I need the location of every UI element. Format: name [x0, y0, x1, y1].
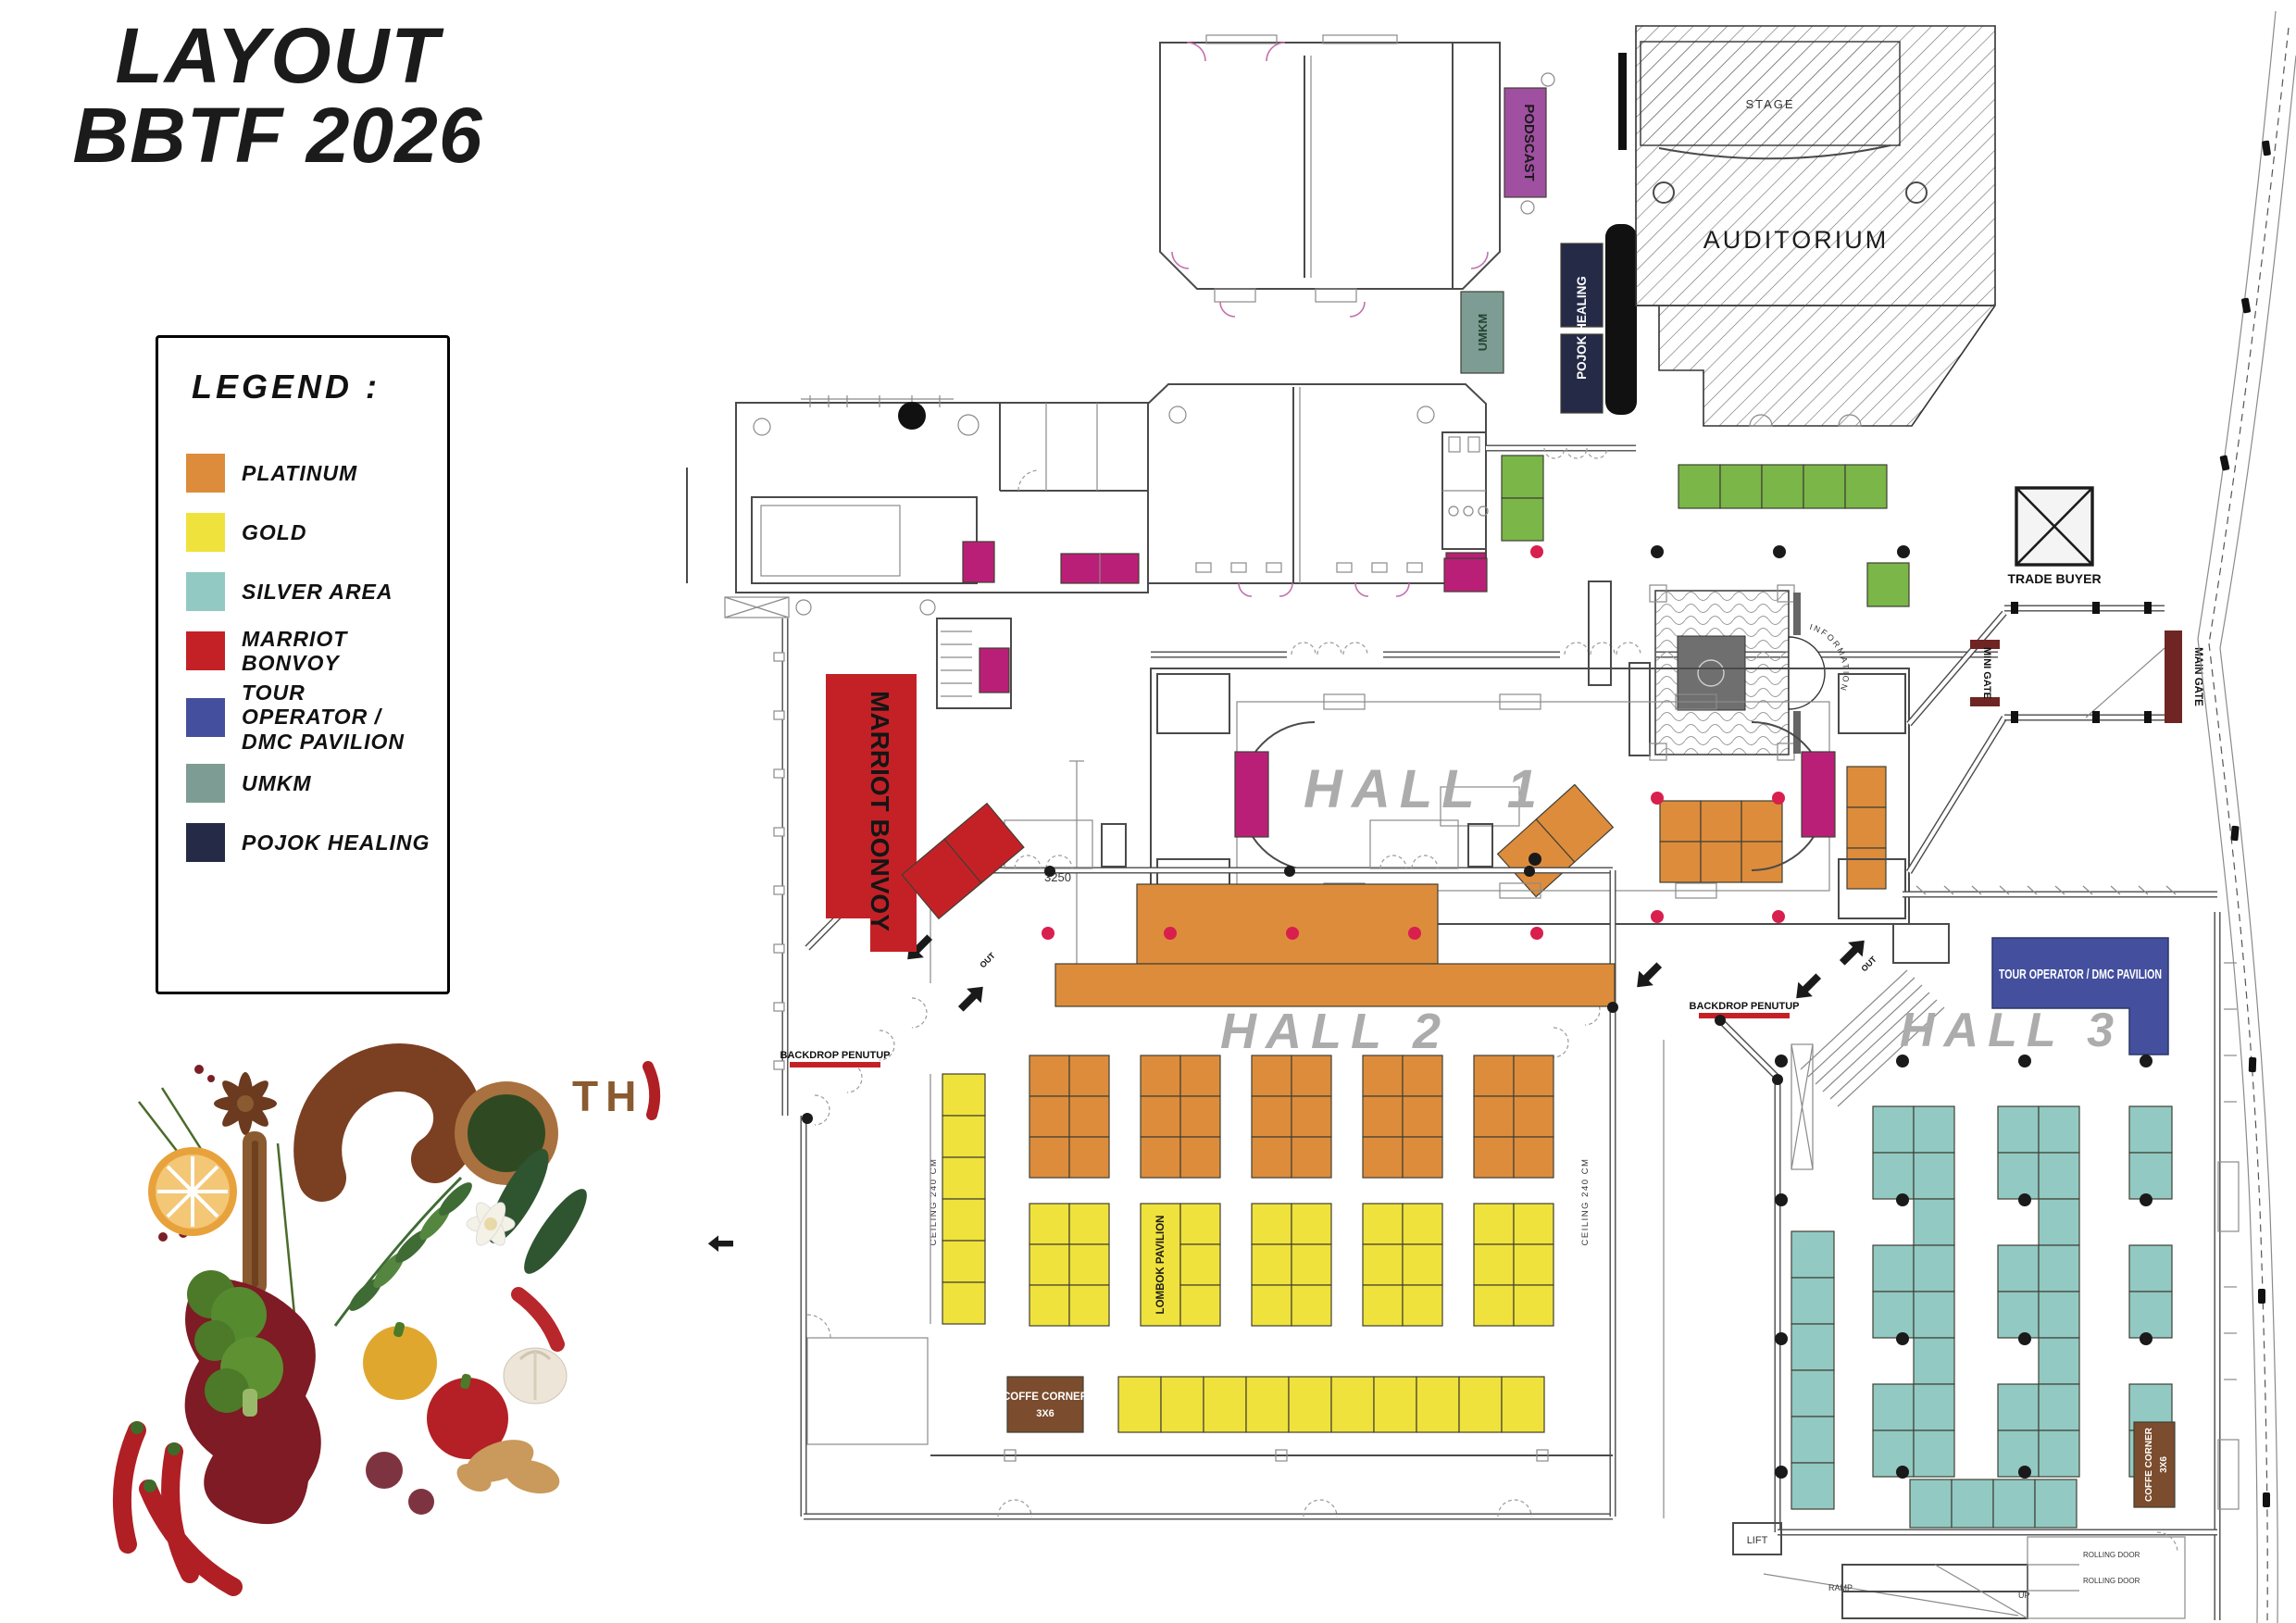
legend-swatch: [186, 764, 225, 803]
booth-magenta: [1802, 752, 1835, 837]
information-plaza: INFORMATION: [1650, 585, 1851, 760]
hall2-label: HALL 2: [1220, 1004, 1450, 1059]
star-anise-icon: [214, 1072, 277, 1135]
left-arrow-icon: [708, 1235, 733, 1252]
legend-label: PLATINUM: [242, 461, 357, 485]
legend-item: UMKM: [186, 754, 447, 813]
silver-island: [1998, 1106, 2079, 1477]
coffee-corner-hall3: COFFE CORNER 3X6: [2134, 1422, 2175, 1507]
legend-swatch: [186, 513, 225, 552]
chili-icon: [518, 1294, 557, 1344]
wall-black: [1618, 53, 1627, 150]
concourse: INFORMATION: [1151, 456, 1998, 897]
pojok-healing-label: POJOK HEALING: [1575, 276, 1589, 380]
main-gate-label: MAIN GATE: [2192, 647, 2203, 706]
backdrop-penutup-label: BACKDROP PENUTUP: [780, 1050, 891, 1061]
coffee-corner-line1: COFFE CORNER: [2144, 1427, 2154, 1502]
hall3-label: HALL 3: [1900, 1004, 2123, 1057]
main-gate: [2165, 630, 2182, 723]
lombok-pavilion-label: LOMBOK PAVILION: [1155, 1216, 1167, 1315]
car-icon: [2262, 141, 2271, 156]
green-booths: [1502, 456, 1909, 606]
car-icon: [2263, 1492, 2270, 1507]
stage-label: STAGE: [1745, 97, 1794, 111]
exit-arrow-icon: [954, 980, 991, 1017]
platinum-island: [1141, 1055, 1220, 1178]
legend-items: PLATINUMGOLDSILVER AREAMARRIOT BONVOYTOU…: [158, 443, 447, 872]
legend-item: MARRIOT BONVOY: [186, 621, 447, 680]
legend-item: SILVER AREA: [186, 562, 447, 621]
entry-arrow-icon: [1629, 957, 1666, 994]
orange-slice-icon: [148, 1147, 237, 1236]
title-line-1: LAYOUT: [56, 17, 500, 94]
bbtf-2026-layout-page: LAYOUT BBTF 2026 LEGEND : PLATINUMGOLDSI…: [0, 0, 2296, 1623]
backdrop-penutup-label: BACKDROP PENUTUP: [1690, 1001, 1800, 1012]
booth-magenta: [1235, 752, 1268, 837]
out-label: OUT: [1859, 955, 1878, 974]
hall3-area: OUT BACKDROP PENUTUP TOUR OPERATOR / DMC…: [1664, 886, 2239, 1620]
legend-label: UMKM: [242, 771, 312, 795]
platinum-island: [1363, 1055, 1442, 1178]
title-line-2: BBTF 2026: [56, 94, 500, 176]
auditorium-label: AUDITORIUM: [1703, 226, 1890, 254]
legend-box: LEGEND : PLATINUMGOLDSILVER AREAMARRIOT …: [156, 335, 450, 994]
gold-row: [1118, 1377, 1544, 1432]
hall2-stage-block: [1055, 964, 1615, 1006]
garlic-icon: [504, 1348, 567, 1404]
chili-icon: [648, 1067, 655, 1115]
legend-item: TOUR OPERATOR / DMC PAVILION: [186, 680, 447, 754]
car-icon: [2249, 1057, 2257, 1072]
gold-island: [1363, 1204, 1442, 1326]
silver-row: [1910, 1479, 2077, 1528]
top-ballroom: [1160, 35, 1500, 317]
bell-pepper-icon: [363, 1321, 508, 1459]
gold-island: [1252, 1204, 1331, 1326]
legend-heading: LEGEND :: [192, 368, 447, 406]
out-label: OUT: [978, 951, 997, 970]
umkm-label: UMKM: [1476, 314, 1490, 351]
marriot-bonvoy-label: MARRIOT BONVOY: [866, 691, 894, 931]
legend-label: POJOK HEALING: [242, 830, 430, 855]
onion-icon: [366, 1452, 434, 1515]
mid-ballroom: [1148, 384, 1488, 596]
gold-island: [1474, 1204, 1554, 1326]
car-icon: [2241, 297, 2252, 313]
legend-label: TOUR OPERATOR / DMC PAVILION: [242, 680, 436, 754]
silver-left-strip: [1791, 1231, 1834, 1509]
lift-label: LIFT: [1747, 1535, 1768, 1546]
booth-magenta: [1444, 558, 1487, 592]
booth-magenta: [980, 648, 1009, 693]
cocoa-swirl-icon: [318, 1067, 457, 1178]
up-label: UP: [2018, 1591, 2030, 1600]
ceiling-note: CEILING 240 CM: [1580, 1158, 1591, 1246]
rolling-door-label: ROLLING DOOR: [2083, 1577, 2140, 1585]
coffee-corner-hall2: COFFE CORNER 3X6: [1003, 1377, 1089, 1432]
legend-swatch: [186, 572, 225, 611]
coffee-corner-line1: COFFE CORNER: [1003, 1392, 1089, 1403]
spiral-stair-icon: [898, 402, 926, 430]
legend-swatch: [186, 454, 225, 493]
rolling-door-label: ROLLING DOOR: [2083, 1551, 2140, 1559]
legend-swatch: [186, 631, 225, 670]
coffee-corner-line2: 3X6: [1036, 1408, 1054, 1419]
booth-magenta: [963, 542, 994, 582]
platinum-island: [1029, 1055, 1109, 1178]
wall-black: [1605, 224, 1637, 415]
car-icon: [2258, 1289, 2265, 1304]
car-icon: [2219, 455, 2229, 470]
legend-swatch: [186, 698, 225, 737]
silver-island: [1873, 1106, 1954, 1477]
hall1-label: HALL 1: [1304, 759, 1546, 819]
anniversary-12th-artwork: TH: [122, 1065, 655, 1587]
anniversary-suffix: TH: [572, 1072, 643, 1120]
legend-label: SILVER AREA: [242, 580, 393, 604]
platinum-island: [1252, 1055, 1331, 1178]
platinum-island: [1474, 1055, 1554, 1178]
legend-swatch: [186, 823, 225, 862]
tour-operator-label: TOUR OPERATOR / DMC PAVILION: [1999, 967, 2162, 982]
coffee-corner-line2: 3X6: [2159, 1456, 2169, 1473]
legend-item: POJOK HEALING: [186, 813, 447, 872]
trade-buyer-label: TRADE BUYER: [2007, 571, 2101, 586]
legend-label: GOLD: [242, 520, 306, 544]
mini-gate-label: MINI GATE: [1981, 647, 1992, 699]
gold-island: [1029, 1204, 1109, 1326]
gold-strip: [942, 1074, 985, 1324]
laurel-branch-icon: [335, 1178, 477, 1326]
hall2-stage-block: [1137, 884, 1438, 964]
legend-item: PLATINUM: [186, 443, 447, 503]
car-icon: [2230, 826, 2239, 842]
legend-label: MARRIOT BONVOY: [242, 627, 436, 676]
silver-right-column: [2129, 1106, 2172, 1477]
special-booths-top: PODSCAST UMKM POJOK HEALING: [1461, 73, 1637, 415]
legend-item: GOLD: [186, 503, 447, 562]
page-title: LAYOUT BBTF 2026: [56, 17, 500, 176]
auditorium-area: STAGE AUDITORIUM: [1618, 26, 1995, 426]
podcast-label: PODSCAST: [1521, 104, 1537, 181]
lombok-pavilion-island: LOMBOK PAVILION: [1141, 1204, 1220, 1326]
